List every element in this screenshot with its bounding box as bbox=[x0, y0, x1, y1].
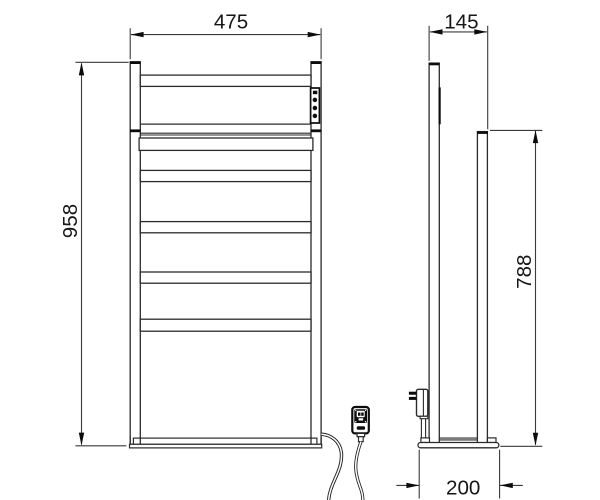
svg-text:958: 958 bbox=[59, 204, 82, 238]
svg-text:200: 200 bbox=[446, 476, 480, 499]
svg-text:145: 145 bbox=[444, 10, 478, 33]
svg-text:788: 788 bbox=[513, 255, 536, 289]
svg-text:475: 475 bbox=[214, 11, 248, 34]
